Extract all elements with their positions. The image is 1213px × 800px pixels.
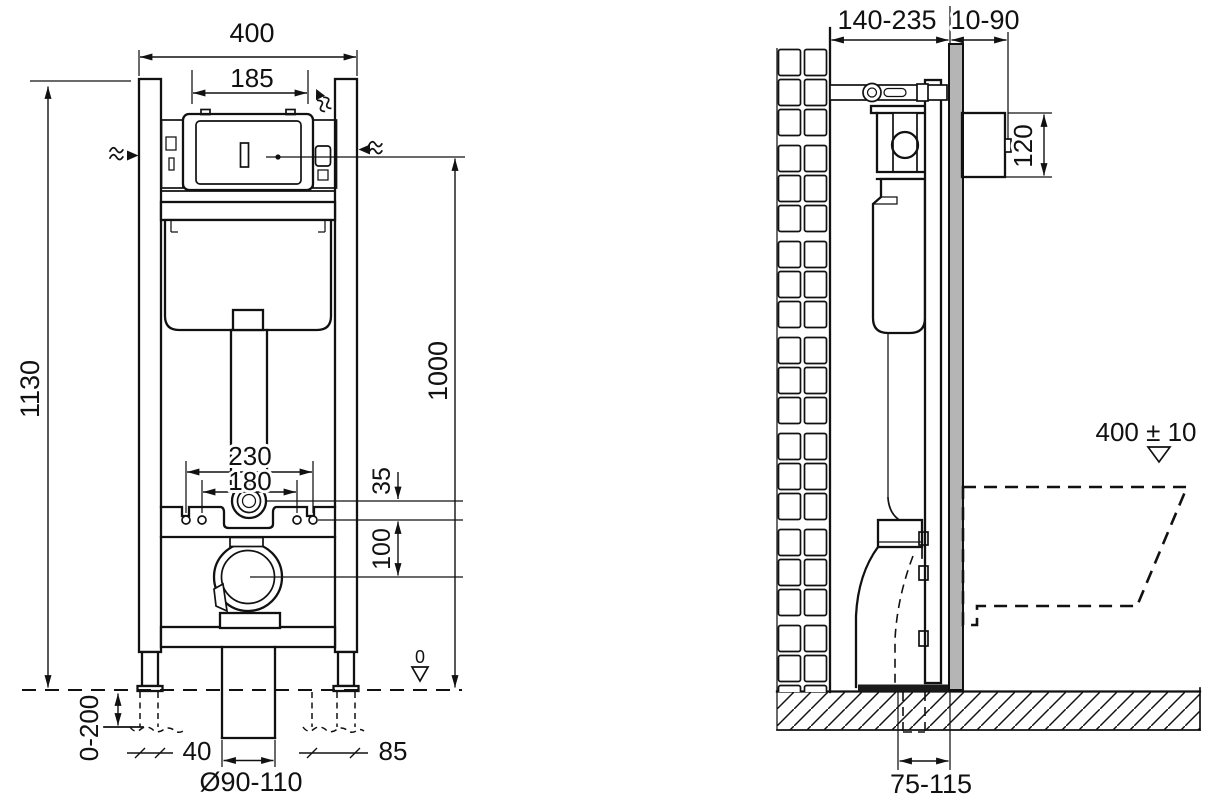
installation-diagram: 400 185 1130 1000 230 180 35 100 0-200 4… [0,0,1213,800]
access-box-side [962,113,1011,177]
bowl-height-datum-icon [1148,447,1170,462]
technical-drawing-canvas: 400 185 1130 1000 230 180 35 100 0-200 4… [0,0,1213,800]
dim-foot-adjustment: 0-200 [74,695,104,762]
dim-inlet-drop: 35 [368,467,396,495]
water-supply-icon-left [110,148,139,161]
dim-wall-finish: 10-90 [950,5,1019,35]
front-view: 400 185 1130 1000 230 180 35 100 0-200 4… [15,18,465,797]
dim-right-clearance: 85 [379,736,408,766]
water-supply-icon-top [312,86,333,113]
wall-bracket [830,85,947,100]
dim-fixing-spacing-inner: 180 [228,466,271,496]
side-view: 140-235 10-90 120 400 ± 10 75-115 [777,5,1200,799]
water-supply-icon-right [359,142,382,155]
dim-access-opening-width: 185 [230,63,273,93]
dim-access-box-height: 120 [1008,124,1038,167]
dim-outlet-pipe-diameter: Ø90-110 [199,767,302,797]
cistern-side [871,106,928,498]
masonry-wall [777,28,830,692]
dim-floor-datum: 0 [415,647,425,667]
flush-bend [233,310,263,330]
dim-panel-axis-height: 1000 [423,341,453,401]
dim-left-clearance: 40 [183,736,212,766]
dim-inlet-to-outlet: 100 [368,528,396,570]
floor-datum-icon [412,667,428,681]
dim-frame-depth: 140-235 [837,5,936,35]
dim-outlet-axis-to-wall: 75-115 [890,769,972,799]
dim-frame-height: 1130 [15,360,45,418]
cistern-front [165,220,331,330]
dim-bowl-rim-height: 400 ± 10 [1095,417,1196,447]
floor-slab [777,688,1200,730]
dim-frame-width: 400 [229,18,274,48]
wc-bowl-outline-dashed [963,487,1187,625]
flush-unit-access-box [162,110,337,191]
foot-extension-dashed-right [303,692,364,732]
base-foot-plate [858,685,950,692]
